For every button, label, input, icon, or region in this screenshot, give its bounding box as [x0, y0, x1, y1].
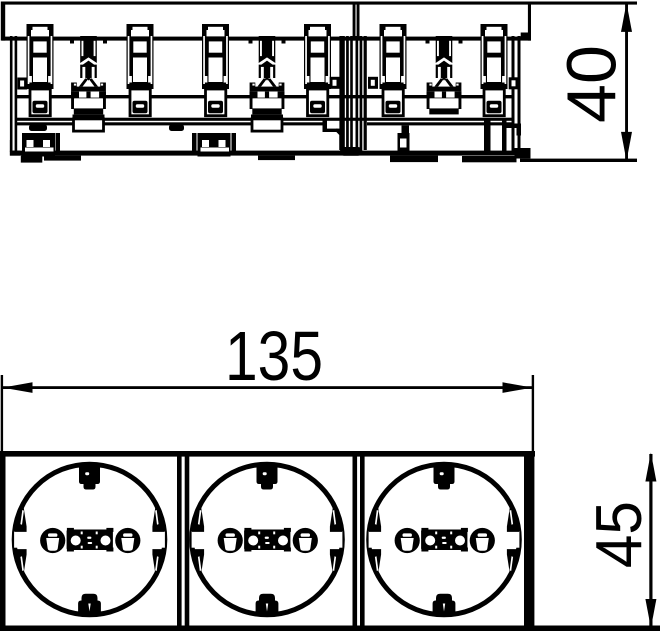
svg-text:45: 45	[583, 501, 655, 568]
svg-text:40: 40	[553, 45, 631, 123]
svg-text:135: 135	[225, 317, 323, 395]
